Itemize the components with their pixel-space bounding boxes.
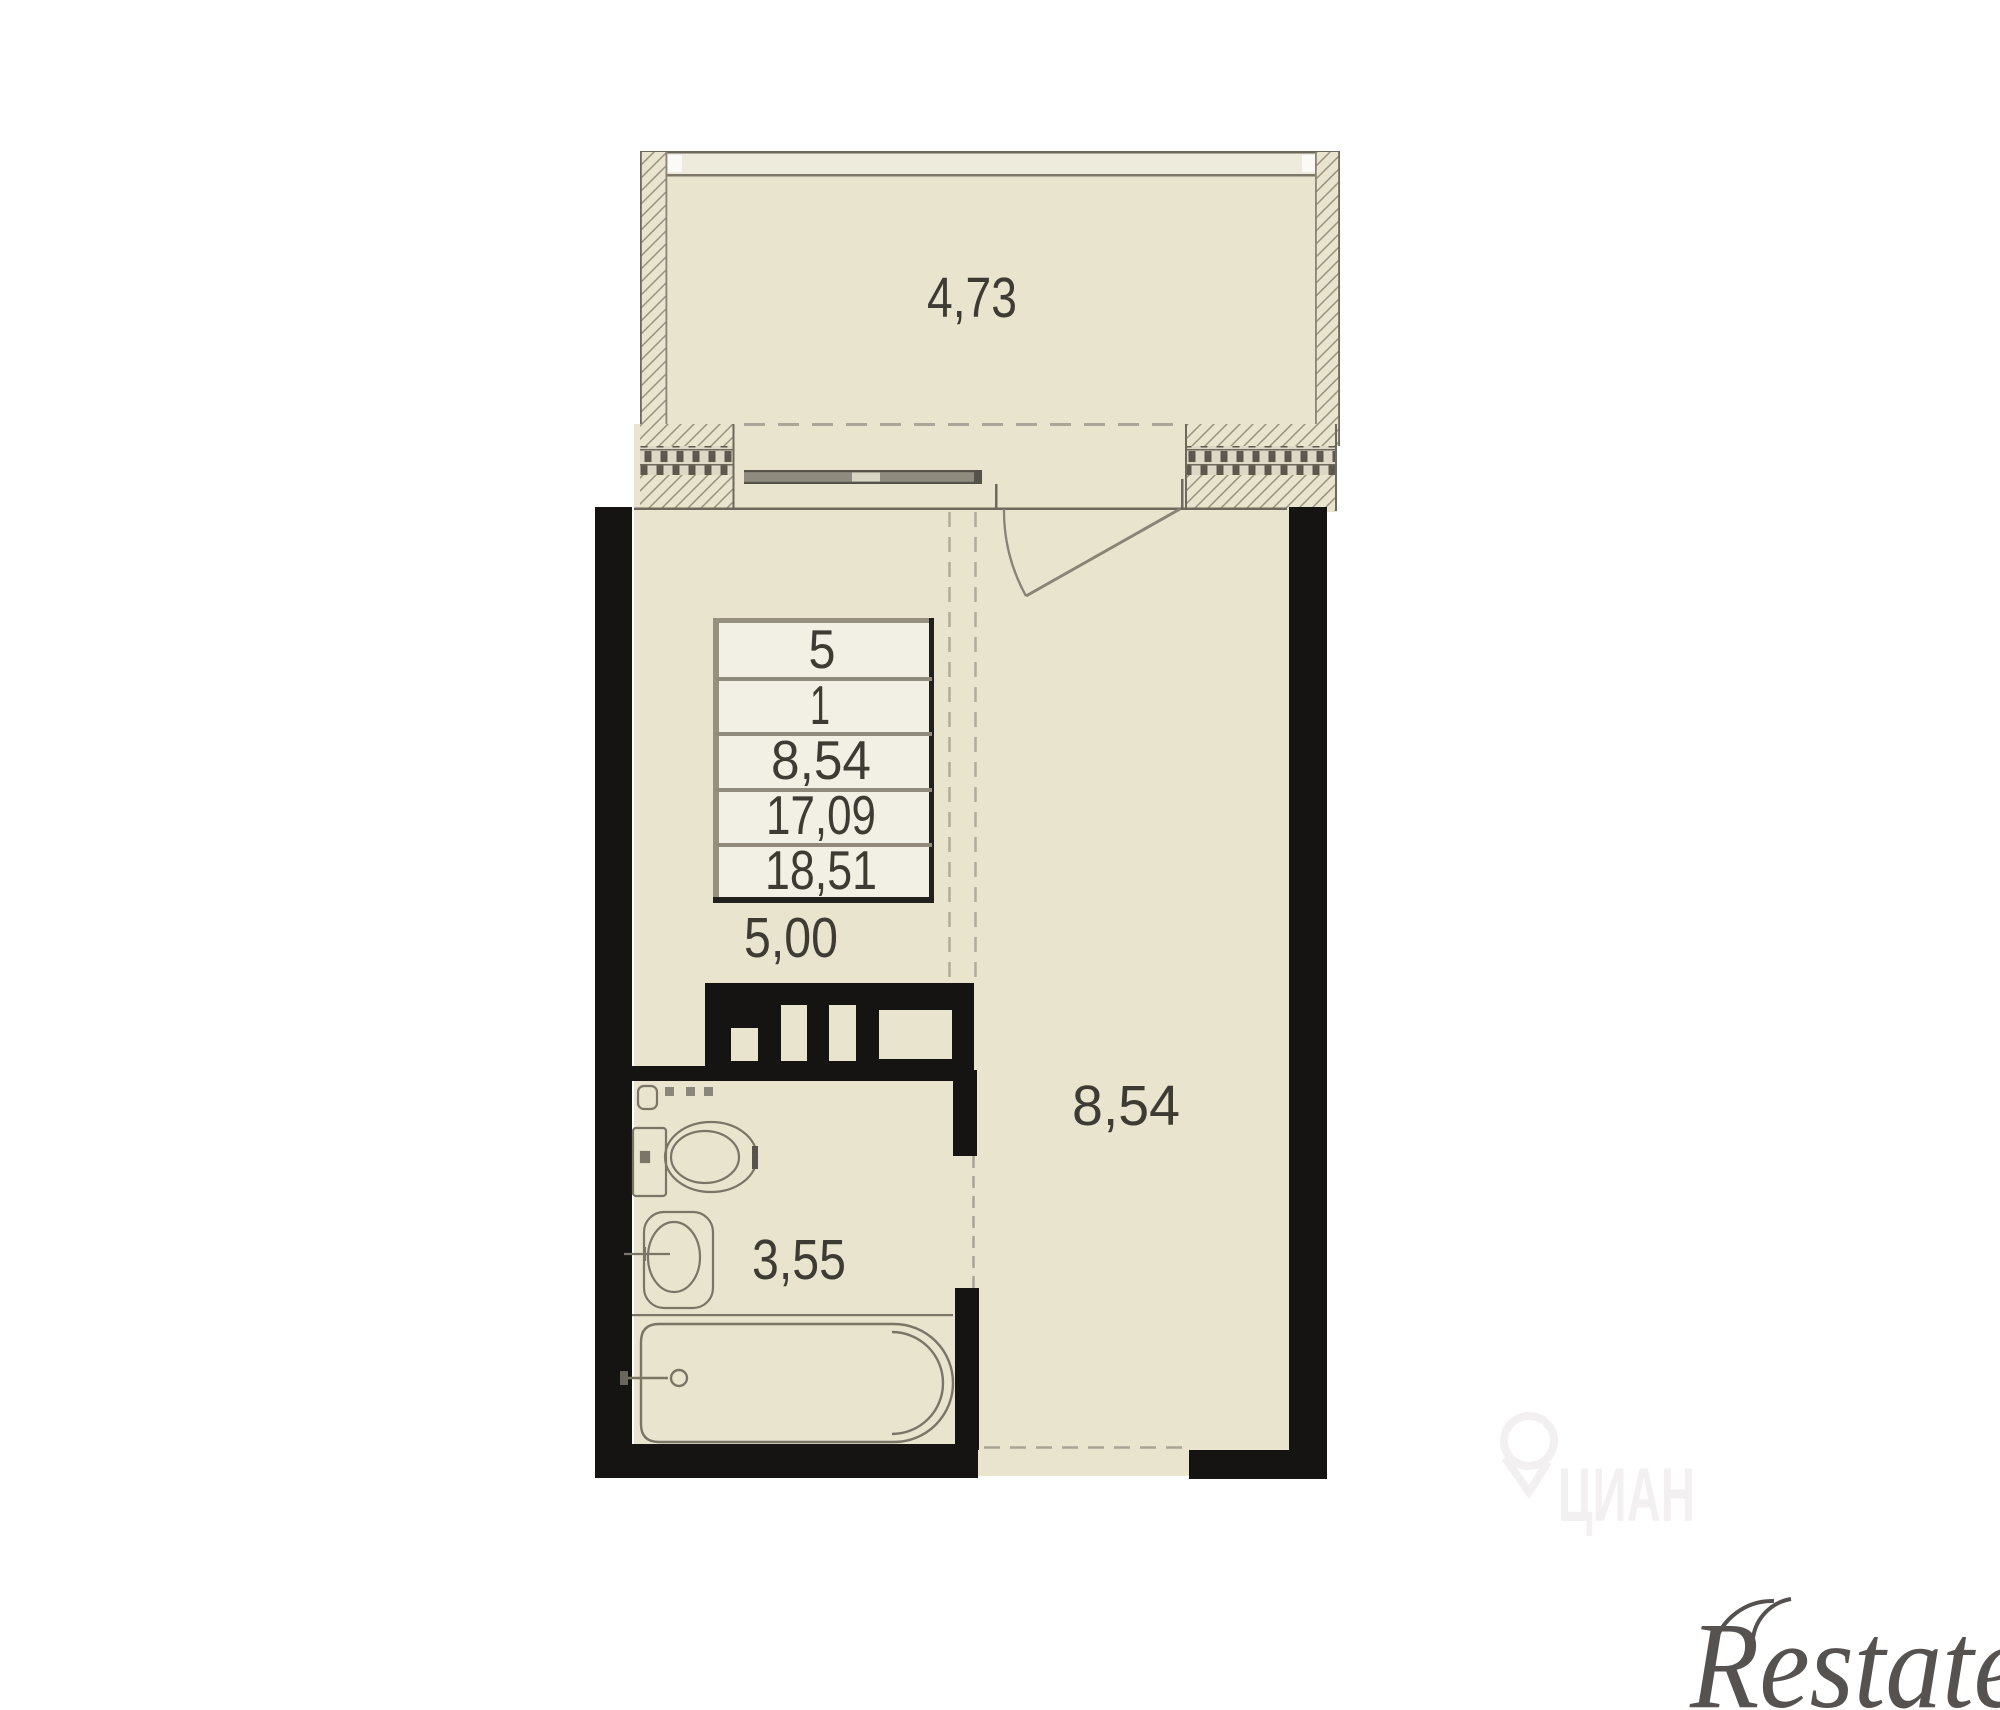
svg-text:17,09: 17,09: [766, 784, 876, 846]
svg-text:1: 1: [810, 674, 830, 736]
svg-text:5,00: 5,00: [744, 906, 838, 970]
svg-text:8,54: 8,54: [771, 729, 871, 791]
svg-text:18,51: 18,51: [765, 839, 877, 901]
svg-text:Restate: Restate: [1689, 1597, 2000, 1710]
svg-text:4,73: 4,73: [927, 266, 1017, 330]
svg-text:5: 5: [809, 618, 836, 680]
svg-text:3,55: 3,55: [752, 1228, 846, 1292]
svg-text:ЦИАН: ЦИАН: [1558, 1453, 1695, 1538]
svg-text:8,54: 8,54: [1072, 1074, 1180, 1138]
